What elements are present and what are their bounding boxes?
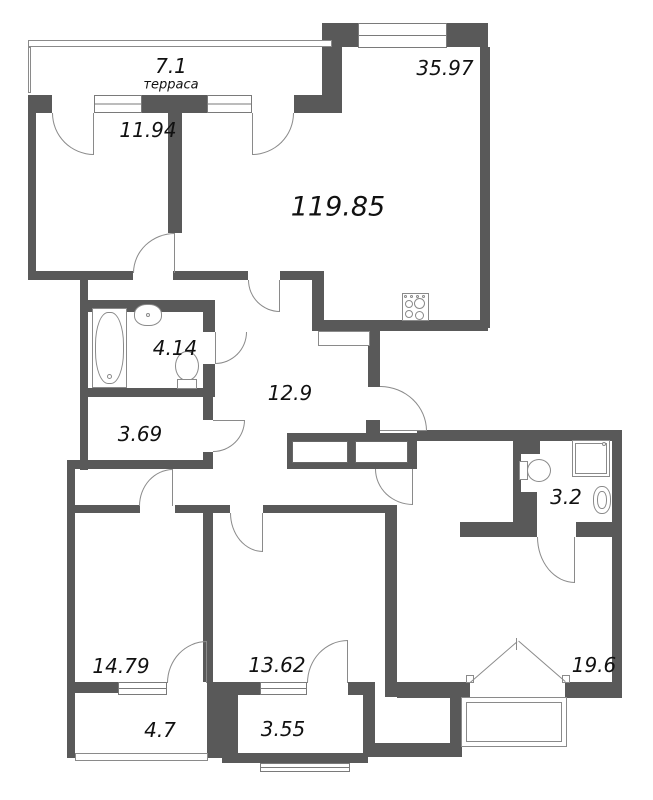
duct-shaft (318, 331, 370, 346)
stove-knob-1 (404, 295, 407, 298)
window-balcony-middle (260, 763, 350, 772)
sink-left-dot (146, 313, 150, 317)
wall-segment (408, 441, 417, 463)
stove-knob-2 (410, 295, 413, 298)
room-label-balcony-middle: 3.55 (261, 717, 306, 741)
wall-segment (576, 522, 612, 537)
wall-segment (322, 47, 342, 113)
room-label-hallway: 12.9 (268, 381, 313, 405)
stove-burner-2 (414, 298, 425, 309)
window-terrace-right (207, 95, 252, 113)
wall-segment (173, 271, 248, 280)
room-label-bedroom-left: 14.79 (92, 654, 149, 678)
wall-segment (385, 505, 397, 697)
stove-burner-3 (405, 310, 413, 318)
wall-segment (222, 753, 368, 763)
terrace-rail-left (28, 47, 31, 93)
stove-knob-4 (422, 295, 425, 298)
terrace-rail-top (28, 40, 332, 47)
room-sublabel-terrace-top: терраса (143, 78, 198, 93)
french-door-leaf-left (470, 641, 517, 682)
door-hall-lower (375, 469, 413, 505)
wall-segment (80, 388, 215, 397)
stove-knob-3 (416, 295, 419, 298)
room-label-bathroom-right: 3.2 (550, 485, 582, 509)
sink-right-inner (597, 491, 607, 509)
door-bedroom-mid-balcony (307, 640, 348, 683)
door-terrace-to-kitchen (252, 113, 294, 155)
wall-segment (460, 522, 537, 537)
french-door-center-tick (516, 638, 517, 650)
door-room-11-94 (133, 233, 175, 273)
window-kitchen-top (358, 23, 447, 48)
room-label-room-11-94: 11.94 (119, 118, 176, 142)
room-label-storage: 3.69 (118, 422, 163, 446)
wall-segment (67, 460, 75, 758)
toilet-right-bowl (527, 459, 551, 482)
wall-segment (28, 271, 133, 280)
wall-segment (312, 320, 488, 331)
room-label-total-area: 119.85 (291, 192, 385, 223)
wardrobe-2 (355, 441, 408, 463)
door-bathroom-right (537, 537, 575, 583)
wall-segment (366, 420, 380, 433)
stove-burner-1 (405, 300, 413, 308)
wall-segment (175, 505, 230, 513)
door-terrace-to-room (52, 113, 94, 155)
wall-segment (80, 280, 88, 470)
balcony-left-rail (75, 753, 208, 761)
door-kitchen-to-hall (248, 280, 280, 312)
room-label-terrace-top: 7.1 (155, 54, 187, 78)
wall-segment (203, 300, 215, 332)
door-bathroom-left (215, 332, 247, 364)
wall-segment (75, 505, 140, 513)
room-label-bathroom-left: 4.14 (153, 336, 198, 360)
wall-segment (207, 682, 238, 758)
wall-segment (238, 682, 260, 695)
wardrobe-1 (292, 441, 348, 463)
french-door-leaf-right (518, 641, 565, 682)
wall-segment (142, 95, 207, 113)
door-bedroom-left-balcony (167, 641, 207, 683)
wall-segment (203, 452, 213, 460)
wall-segment (363, 682, 375, 757)
door-storage (213, 420, 245, 452)
window-bedroom-middle (260, 682, 307, 695)
room-label-balcony-left: 4.7 (144, 718, 176, 742)
wall-segment (480, 47, 490, 328)
stove-burner-4 (415, 311, 424, 320)
balcony-right-inner (466, 702, 562, 742)
wall-segment (67, 682, 118, 693)
door-bedroom-left (139, 469, 173, 506)
window-bedroom-left (118, 682, 167, 695)
room-label-bedroom-middle: 13.62 (248, 653, 305, 677)
door-bedroom-middle (230, 513, 263, 552)
wall-segment (375, 743, 462, 757)
wall-segment (521, 492, 537, 522)
window-terrace-left (94, 95, 142, 113)
wall-segment (518, 438, 540, 454)
shower-dot (602, 442, 606, 446)
wall-segment (263, 505, 393, 513)
wall-segment (565, 682, 622, 698)
wall-segment (397, 682, 470, 698)
wall-segment (348, 441, 355, 463)
bathtub-drain (107, 374, 112, 379)
room-label-kitchen-living: 35.97 (416, 56, 473, 80)
wall-segment (447, 23, 488, 47)
toilet-left-tank (177, 379, 197, 389)
wall-segment (203, 397, 213, 420)
wall-segment (28, 95, 52, 113)
door-entry (380, 386, 427, 431)
wall-segment (67, 460, 213, 469)
room-label-bedroom-right: 19.6 (572, 653, 617, 677)
wall-segment (28, 113, 36, 271)
floor-plan: 7.1терраса11.9435.97119.854.1412.93.693.… (0, 0, 653, 800)
shower-tray-inner (575, 443, 607, 474)
